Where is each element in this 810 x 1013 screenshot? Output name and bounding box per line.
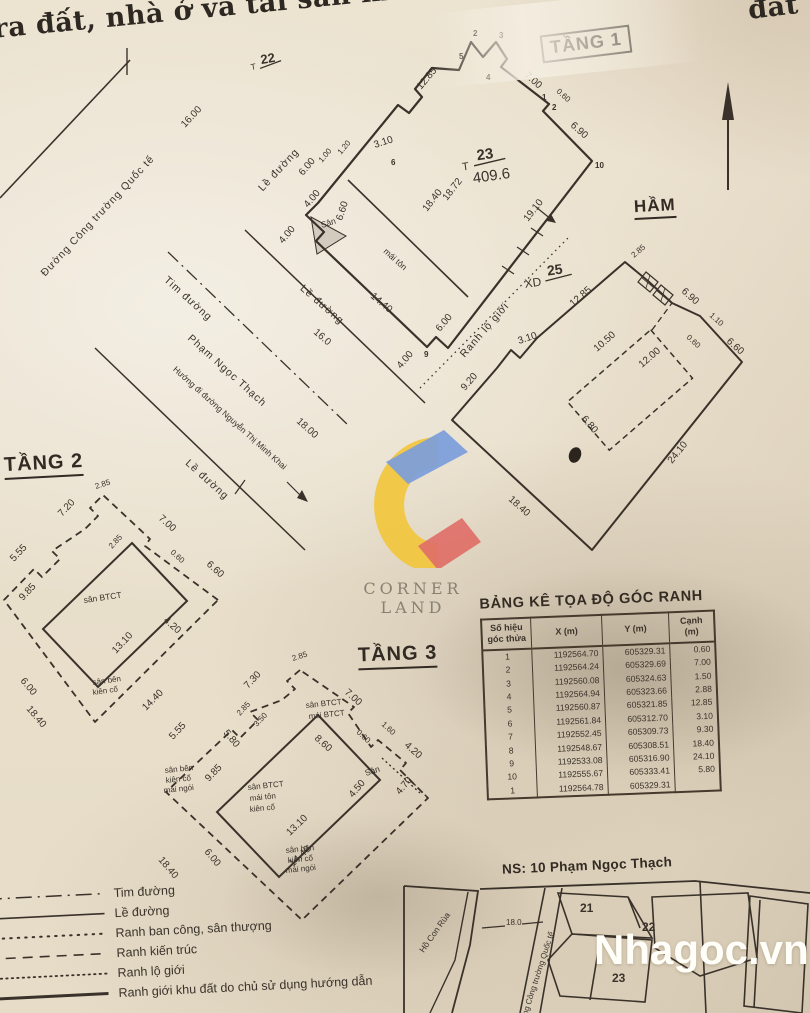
- dim-label: 2.85: [291, 649, 309, 663]
- dim-label: 4.00: [302, 188, 323, 210]
- street-name: Phạm Ngọc Thạch: [185, 332, 269, 409]
- svg-text:409.6: 409.6: [472, 165, 512, 187]
- legend: Tim đường Lề đường Ranh ban công, sân th…: [0, 871, 373, 1010]
- dim-label: 5.55: [8, 542, 30, 564]
- dim-label: 6.90: [679, 286, 701, 307]
- column-header: Số hiệu góc thửa: [481, 618, 532, 650]
- dim-label: 6.00: [297, 156, 318, 178]
- dim-label: 5.55: [167, 720, 189, 742]
- table-cell: [675, 776, 721, 792]
- street-name: Lề đường: [298, 282, 347, 327]
- dim-label: 4.50: [347, 778, 368, 800]
- column-header: Y (m): [601, 612, 669, 645]
- dim-label: 18.40: [24, 704, 49, 731]
- inner-structure-outline: [43, 543, 187, 687]
- floor-plan-tang2: 2.85 7.20 7.00 0.60 6.60 2.85 5.55 9.85 …: [4, 477, 242, 750]
- dim-label: 2.85: [94, 477, 112, 491]
- corner-land-logo: CORNER LAND: [338, 418, 498, 617]
- area-label: mái ngói: [163, 783, 194, 795]
- dim-label: 0.60: [355, 728, 373, 745]
- north-arrow-icon: [722, 82, 734, 190]
- dim-label: 7.30: [242, 669, 264, 691]
- heading-ham: HẦM: [633, 195, 676, 220]
- dim-label: 1.10: [708, 311, 726, 328]
- mai-ton-label: mái tôn: [382, 246, 410, 272]
- street-cong-truong-quoc-te: Đường Công trường Quốc tế 16.00: [0, 48, 205, 279]
- dim-label: 7.20: [56, 497, 78, 519]
- solid-line-icon: [0, 911, 105, 923]
- dash-dot-line-icon: [0, 891, 104, 903]
- dim-label: 2.85: [630, 242, 648, 259]
- svg-text:T: T: [250, 61, 257, 72]
- parcel-number: 21: [580, 901, 594, 915]
- legend-label: Ranh kiến trúc: [116, 942, 197, 960]
- area-label: mái tôn: [249, 791, 276, 803]
- street-name: Lề đường: [256, 146, 302, 194]
- lake-label: Hồ Con Rùa: [417, 910, 452, 954]
- street-name: Lề đường: [183, 457, 231, 502]
- column-header: Cạnh (m): [668, 611, 715, 643]
- thick-solid-line-icon: [0, 991, 109, 1003]
- point-label: 10: [595, 161, 604, 170]
- dim-label: 10.50: [592, 329, 618, 354]
- table-cell: 605329.31: [608, 778, 676, 795]
- svg-text:T: T: [461, 161, 470, 174]
- fine-dotted-line-icon: [0, 971, 108, 983]
- heading-tang3: TẦNG 3: [358, 642, 438, 671]
- point-label: 4: [486, 73, 491, 82]
- column-header: X (m): [531, 615, 603, 648]
- dim-label: 0.60: [555, 87, 573, 104]
- site-watermark: Nhagoc.vn: [594, 926, 809, 974]
- coordinate-table: Số hiệu góc thửa X (m) Y (m) Cạnh (m) 11…: [480, 610, 722, 801]
- dim-label: 12.00: [637, 345, 663, 370]
- point-label: 9: [424, 350, 429, 359]
- inner-structure-outline: [568, 330, 693, 450]
- dim-label: 4.20: [161, 615, 183, 636]
- floor-plan-tang1: 12.85 7.00 0.60 6.90 19.10 3.10 1.00 1.2…: [248, 29, 604, 371]
- dim-label: 7.00: [156, 513, 178, 534]
- dim-label: 4.00: [277, 224, 298, 246]
- dim-label: 18.40: [156, 855, 181, 882]
- street-name: Tim đường: [162, 274, 215, 323]
- dim-label: 0.60: [169, 548, 187, 565]
- direction-arrow-icon: [297, 490, 308, 502]
- point-label: 3: [499, 31, 504, 40]
- dim-label: 6.00: [18, 676, 39, 698]
- dim-label: 1.20: [336, 138, 353, 156]
- dim-label: 1.60: [380, 720, 398, 737]
- legend-label: Lề đường: [114, 903, 169, 920]
- coord-table-body: 11192564.70605329.310.6021192564.2460532…: [482, 641, 721, 799]
- table-cell: 1: [487, 783, 537, 799]
- ink-blot: [567, 445, 584, 464]
- logo-wordmark: CORNER LAND: [328, 579, 498, 617]
- street-name: Đường Công trường Quốc tế: [39, 153, 157, 279]
- dim-label: 19.10: [522, 197, 546, 224]
- dim-label: 2.85: [235, 699, 253, 717]
- dim-label: 2.85: [107, 532, 125, 550]
- dim-label: 18.00: [294, 416, 320, 441]
- dim-label: 7.00: [522, 70, 544, 91]
- dim-label: 6.00: [434, 312, 455, 334]
- dim-label: 5.80: [221, 728, 242, 750]
- svg-text:XD: XD: [524, 275, 543, 291]
- table-cell: 1192564.78: [537, 780, 609, 797]
- dim-label: 6.60: [204, 559, 226, 580]
- area-label: sân BTCT: [247, 779, 284, 792]
- dim-label: 6.60: [334, 200, 351, 222]
- dim-label: 13.10: [284, 813, 310, 839]
- dim-label: 3.10: [517, 330, 539, 347]
- plot-label-23: T 23 409.6: [460, 143, 512, 188]
- dim-label: 6.80: [579, 414, 600, 436]
- svg-text:25: 25: [546, 261, 564, 279]
- dim-label: 18.40: [421, 187, 445, 214]
- plot-label-xd25: XD 25: [522, 259, 573, 290]
- corner-land-logo-icon: [338, 418, 488, 568]
- coordinate-table-section: BẢNG KÊ TỌA ĐỘ GÓC RANH Số hiệu góc thửa…: [479, 588, 722, 801]
- dotted-line-icon: [0, 931, 106, 943]
- area-label: sân BTCT: [83, 590, 122, 605]
- dim-label: 18.72: [441, 176, 465, 203]
- dim-label: 9.85: [17, 581, 39, 603]
- dim-label: 9.85: [203, 762, 225, 784]
- dim-label: 6.00: [202, 847, 223, 869]
- dim-label: 4.00: [395, 349, 416, 371]
- area-label: mái BTCT: [308, 708, 345, 721]
- scanned-survey-document: ra đất, nhà ở và tài sản khác gắn đất Đư…: [0, 0, 810, 1013]
- dim-label: 4.20: [402, 740, 424, 761]
- dim-label: 13.10: [110, 630, 135, 656]
- dim-label: 1.00: [317, 146, 334, 164]
- point-label: 2: [473, 29, 478, 38]
- legend-label: Ranh lộ giới: [117, 963, 185, 980]
- legend-label: Tim đường: [113, 883, 175, 900]
- dim-label: 14.40: [140, 687, 166, 713]
- plot-label-22: T 22: [248, 49, 282, 72]
- street-name: Đường Công trường Quốc tế: [515, 930, 556, 1013]
- point-label: 6: [391, 158, 396, 167]
- dim-label: 3.50: [252, 710, 270, 728]
- ranh-lo-gioi-label: Ranh lộ giới: [458, 300, 512, 360]
- dashed-line-icon: [0, 951, 107, 963]
- area-label: kiên cố: [249, 802, 276, 814]
- dim-label: 18.0: [506, 918, 522, 927]
- point-label: 2: [552, 103, 557, 112]
- dim-label: 18.40: [506, 494, 532, 519]
- point-label: 5: [459, 52, 464, 61]
- heading-tang2: TẦNG 2: [3, 450, 84, 480]
- dim-label: 0.60: [685, 333, 703, 350]
- dim-label: 16.00: [179, 104, 204, 130]
- dim-label: 8.60: [312, 733, 334, 754]
- dim-label: 3.10: [373, 134, 395, 151]
- dim-label: 12.85: [568, 284, 594, 309]
- svg-text:22: 22: [259, 50, 276, 67]
- dim-label: 16.0: [311, 327, 333, 348]
- point-label: 1: [542, 93, 547, 102]
